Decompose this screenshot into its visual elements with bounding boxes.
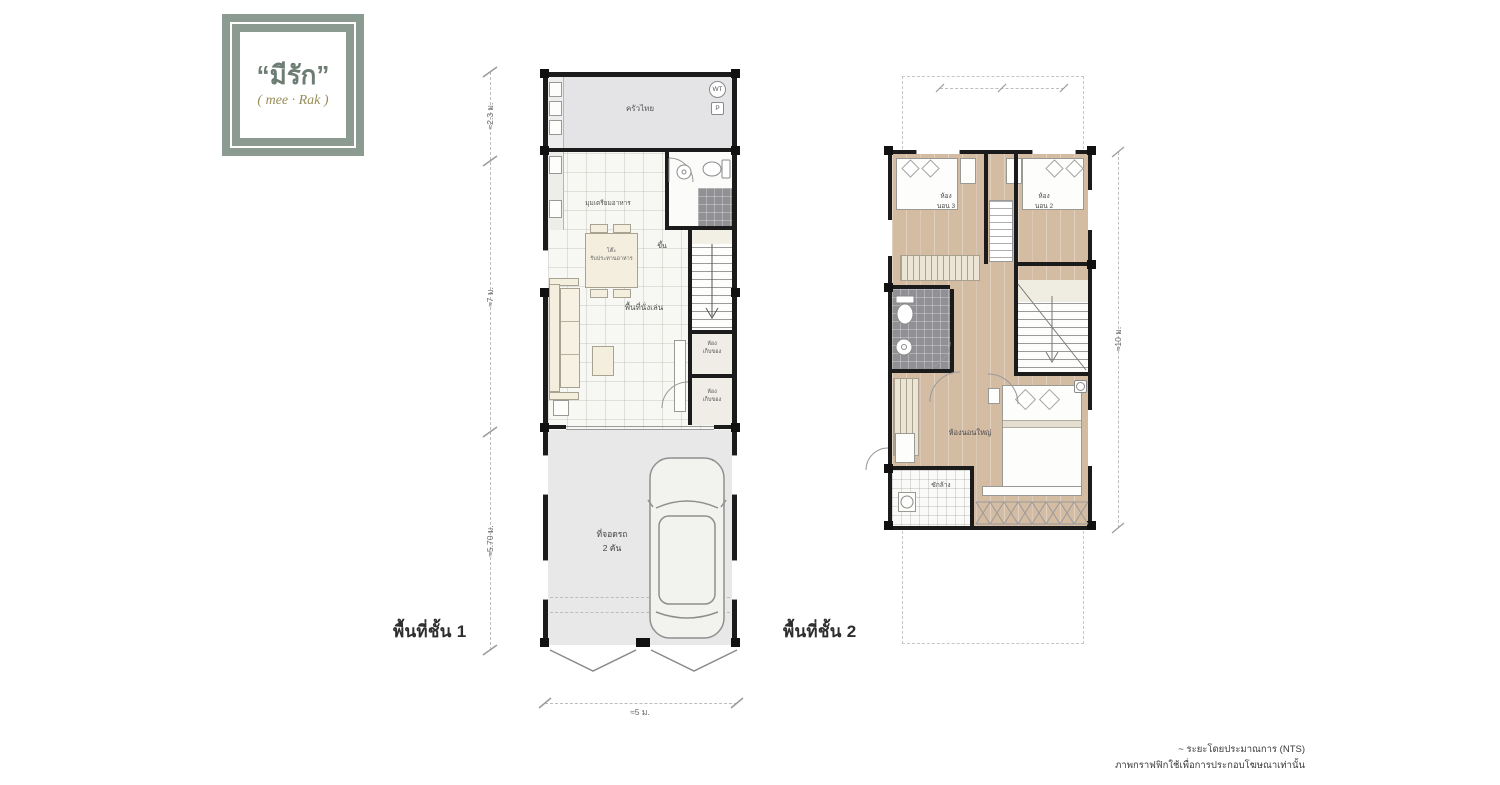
floorplan-page: “มีรัก” ( mee · Rak ) ครัวไทย WT P มุมเต…	[0, 0, 1500, 785]
column-post	[540, 146, 549, 155]
kitchen-appliance	[549, 82, 562, 97]
sofa-back	[549, 284, 560, 392]
dining-chair	[590, 289, 608, 298]
brand-logo-core: “มีรัก” ( mee · Rak )	[240, 32, 346, 138]
bedroom2-label: ห้องนอน 2	[1026, 192, 1062, 212]
column-post	[540, 69, 549, 78]
sofa-armrest	[549, 392, 579, 400]
floor2-top-dim-line	[940, 88, 1064, 89]
column-post	[540, 423, 549, 432]
washing-machine	[898, 492, 916, 512]
floor1-title: พื้นที่ชั้น 1	[393, 618, 466, 645]
column-post	[1087, 260, 1096, 269]
parking-label: ที่จอดรถ2 คัน	[583, 528, 641, 555]
air-conditioner-icon	[1074, 380, 1087, 393]
dining-chair	[590, 224, 608, 233]
floor1-stair-landing	[692, 230, 732, 244]
window	[916, 150, 960, 154]
prep-label: มุมเตรียมอาหาร	[570, 200, 646, 208]
bedroom3-label: ห้องนอน 3	[928, 192, 964, 212]
window	[1088, 410, 1092, 466]
laundry-label: ซักล้าง	[916, 482, 966, 490]
brand-logo-frame: “มีรัก” ( mee · Rak )	[222, 14, 364, 156]
blanket-line	[1003, 420, 1081, 428]
column-post	[884, 283, 893, 292]
kitchen-appliance	[549, 120, 562, 135]
window	[543, 560, 548, 600]
floor2-wall-stair-bottom	[1014, 372, 1092, 376]
wardrobe-bedroom3	[900, 255, 980, 281]
dressing-table	[895, 433, 915, 463]
floor2-title: พื้นที่ชั้น 2	[783, 618, 856, 645]
dim-line-floor1-width	[545, 703, 737, 704]
brand-name-thai: “มีรัก”	[257, 61, 330, 90]
column-post	[731, 638, 740, 647]
prep-appliance	[549, 156, 562, 174]
linen-closet	[989, 200, 1013, 262]
dim-label-5-70m: ≈5.70 ม.	[483, 511, 497, 571]
floor2-wall-bath-bottom	[892, 369, 950, 373]
column-post	[540, 288, 549, 297]
dining-chair	[613, 289, 631, 298]
window	[732, 455, 737, 495]
nightstand	[988, 388, 1000, 404]
floor2-bath-floor	[892, 289, 950, 369]
water-tank-tag: WT	[709, 81, 726, 98]
column-post	[636, 638, 650, 647]
stairs-up-label: ขึ้น	[648, 242, 676, 251]
column-post	[1087, 521, 1096, 530]
column-post	[884, 521, 893, 530]
parking-dash-line	[550, 597, 730, 598]
column-post	[884, 146, 893, 155]
storage2-label: ห้องเก็บของ	[692, 388, 732, 405]
column-post	[731, 69, 740, 78]
floor1-wall-park-left-stub	[548, 425, 566, 429]
floor2-wall-bath-right	[950, 289, 954, 373]
disclaimer-line1: ~ ระยะโดยประมาณการ (NTS)	[985, 742, 1305, 758]
bedside-shelf	[960, 158, 976, 184]
tv-cabinet	[674, 340, 686, 412]
disclaimer-line2: ภาพกราฟฟิกใช้เพื่อการประกอบโฆษณาเท่านั้น	[985, 758, 1305, 774]
side-table	[553, 400, 569, 416]
window-bench	[982, 486, 1082, 496]
disclaimer-note: ~ ระยะโดยประมาณการ (NTS) ภาพกราฟฟิกใช้เพ…	[985, 742, 1305, 774]
column-post	[731, 288, 740, 297]
gate-swing	[550, 650, 636, 671]
dining-chair	[613, 224, 631, 233]
dim-label-7m: ≈7 ม.	[483, 267, 497, 327]
parking-dash-line	[550, 612, 730, 613]
column-post	[731, 423, 740, 432]
floor2-wall-bed2-south	[1014, 262, 1092, 266]
pump-tag: P	[711, 102, 724, 115]
storage1-label: ห้องเก็บของ	[692, 340, 732, 357]
prep-appliance	[549, 200, 562, 218]
floor2-wall-core-right	[1014, 154, 1018, 264]
kitchen-appliance	[549, 101, 562, 116]
window	[1032, 150, 1076, 154]
window	[888, 220, 892, 256]
dining-table-label: โต๊ะรับประทานอาหาร	[587, 248, 636, 263]
floor1-wall-park-right-stub	[714, 425, 732, 429]
column-post	[731, 146, 740, 155]
gate-swing	[651, 650, 737, 671]
window	[543, 455, 548, 495]
floor2-wall-laundry-right	[970, 470, 974, 526]
dim-label-5m: ≈5 ม.	[615, 707, 665, 718]
column-post	[1087, 146, 1096, 155]
floor1-stairs	[692, 240, 732, 330]
dim-label-2-3m: ≈2.3 ม.	[483, 86, 497, 146]
floor2-stair-landing	[1018, 280, 1088, 302]
coffee-table	[592, 346, 614, 376]
column-post	[540, 638, 549, 647]
kitchen-label: ครัวไทย	[600, 104, 680, 114]
window	[732, 560, 737, 600]
column-post	[884, 464, 893, 473]
sliding-door-line	[566, 426, 714, 427]
brand-name-latin: ( mee · Rak )	[257, 93, 328, 109]
dim-label-10m: ≈10 ม.	[1111, 309, 1125, 369]
living-label: พื้นที่นั่งเล่น	[608, 303, 680, 313]
sofa-cushions	[560, 288, 580, 388]
floor2-wall-core-left	[984, 154, 988, 264]
master-bedroom-label: ห้องนอนใหญ่	[935, 428, 1005, 438]
floor1-shower-tile	[698, 188, 732, 226]
window	[1088, 190, 1092, 230]
